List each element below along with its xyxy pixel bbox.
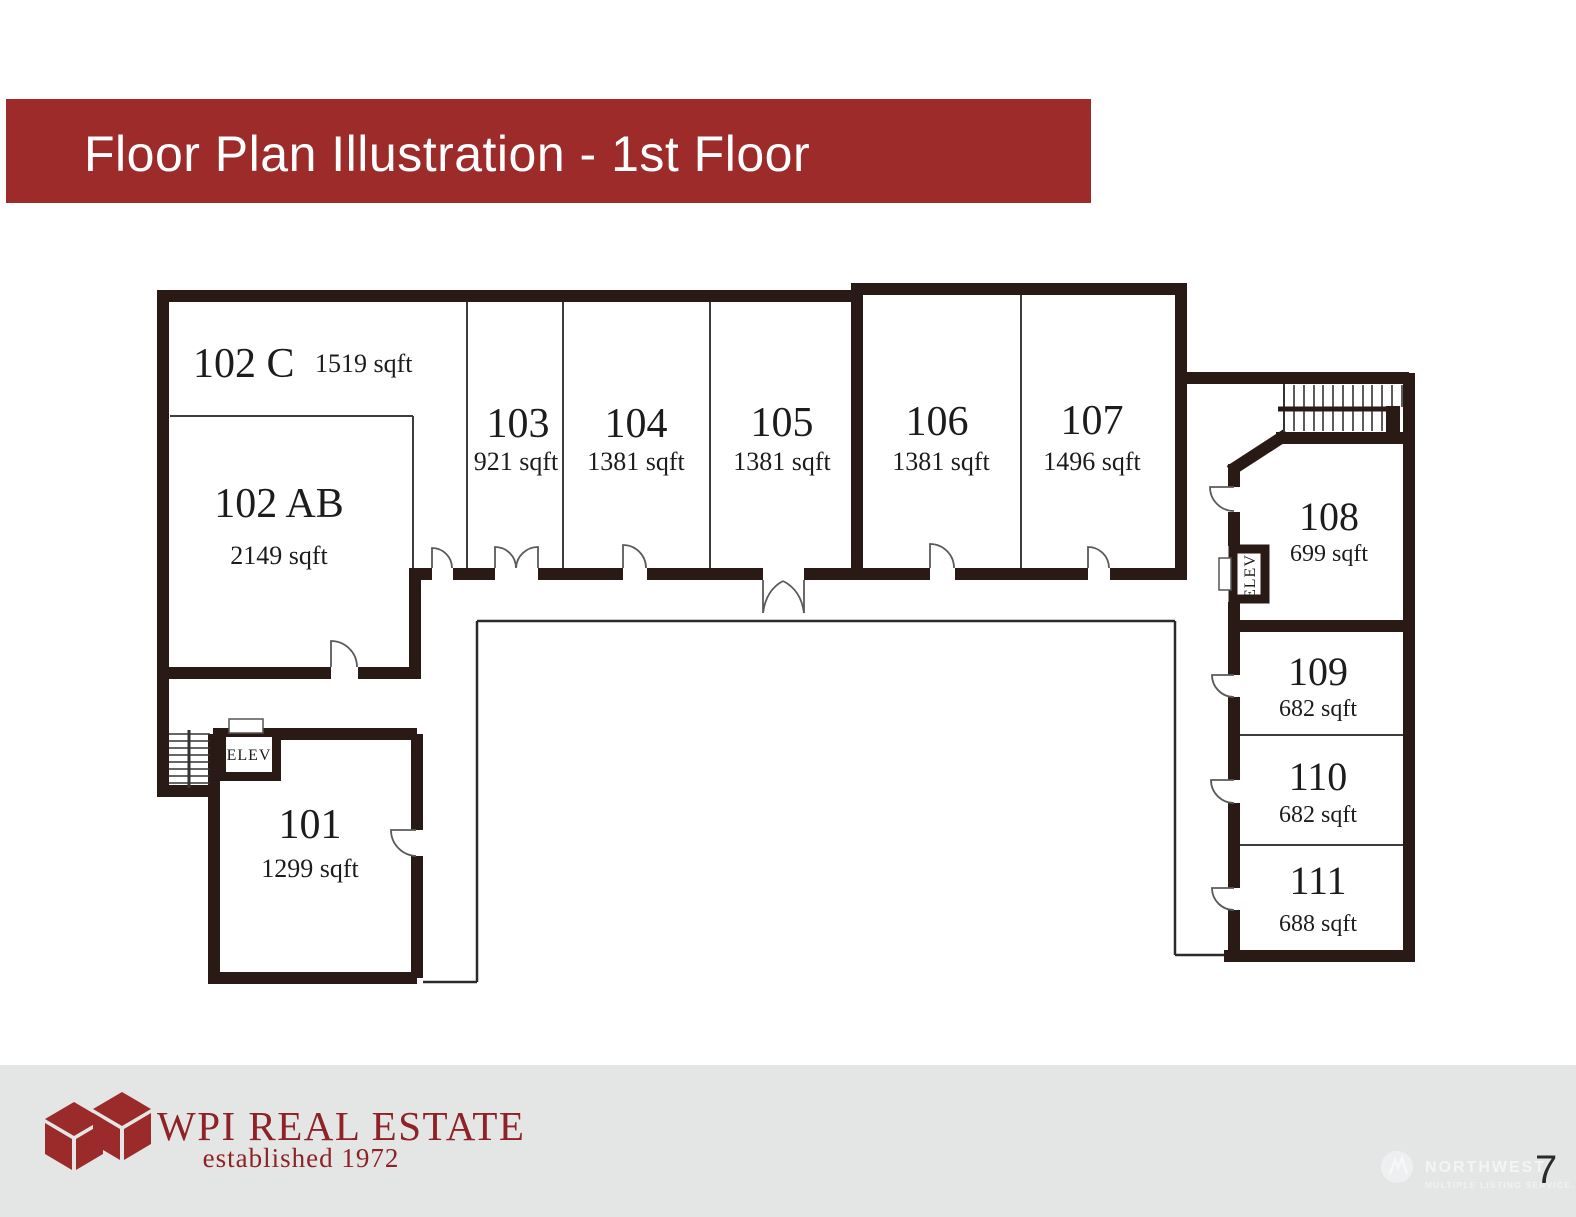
room-105-number: 105 bbox=[751, 400, 814, 446]
room-104-sqft: 1381 sqft bbox=[587, 447, 685, 476]
room-102ab-number: 102 AB bbox=[214, 481, 344, 527]
title-banner: Floor Plan Illustration - 1st Floor bbox=[6, 99, 1091, 203]
room-107-number: 107 bbox=[1061, 398, 1124, 444]
room-108-number: 108 bbox=[1299, 494, 1359, 539]
room-104-number: 104 bbox=[605, 401, 668, 447]
room-107-sqft: 1496 sqft bbox=[1043, 447, 1141, 476]
room-103-sqft: 921 sqft bbox=[474, 447, 559, 476]
footer: WPI REAL ESTATE established 1972 NORTHWE… bbox=[0, 1065, 1576, 1217]
room-111-number: 111 bbox=[1289, 858, 1346, 903]
elevator-right-label: ELEV bbox=[1242, 554, 1259, 599]
room-109-sqft: 682 sqft bbox=[1279, 696, 1357, 722]
floor-plan-slide: Floor Plan Illustration - 1st Floor bbox=[0, 0, 1576, 1217]
room-106-sqft: 1381 sqft bbox=[892, 447, 990, 476]
elevator-right-door-notch bbox=[1219, 558, 1231, 590]
elevator-left-door-notch bbox=[229, 719, 263, 733]
room-108-sqft: 699 sqft bbox=[1290, 541, 1368, 567]
room-102c-number: 102 C bbox=[193, 341, 295, 387]
room-101-sqft: 1299 sqft bbox=[261, 854, 359, 883]
company-tagline: established 1972 bbox=[203, 1143, 400, 1173]
room-106-number: 106 bbox=[906, 399, 969, 445]
room-102c-sqft: 1519 sqft bbox=[315, 349, 413, 378]
room-109-number: 109 bbox=[1288, 649, 1348, 694]
room-110-sqft: 682 sqft bbox=[1279, 802, 1357, 828]
page-number: 7 bbox=[1535, 1148, 1557, 1192]
slide-page: Floor Plan Illustration - 1st Floor bbox=[0, 0, 1576, 1217]
room-111-sqft: 688 sqft bbox=[1279, 911, 1357, 937]
elevator-left-label: ELEV bbox=[227, 747, 272, 764]
room-102ab-sqft: 2149 sqft bbox=[230, 541, 328, 570]
room-105-sqft: 1381 sqft bbox=[733, 447, 831, 476]
room-103-number: 103 bbox=[487, 401, 550, 447]
watermark-name: NORTHWEST bbox=[1425, 1159, 1546, 1176]
page-title: Floor Plan Illustration - 1st Floor bbox=[84, 126, 810, 182]
room-110-number: 110 bbox=[1289, 754, 1348, 799]
room-101-number: 101 bbox=[279, 802, 342, 848]
